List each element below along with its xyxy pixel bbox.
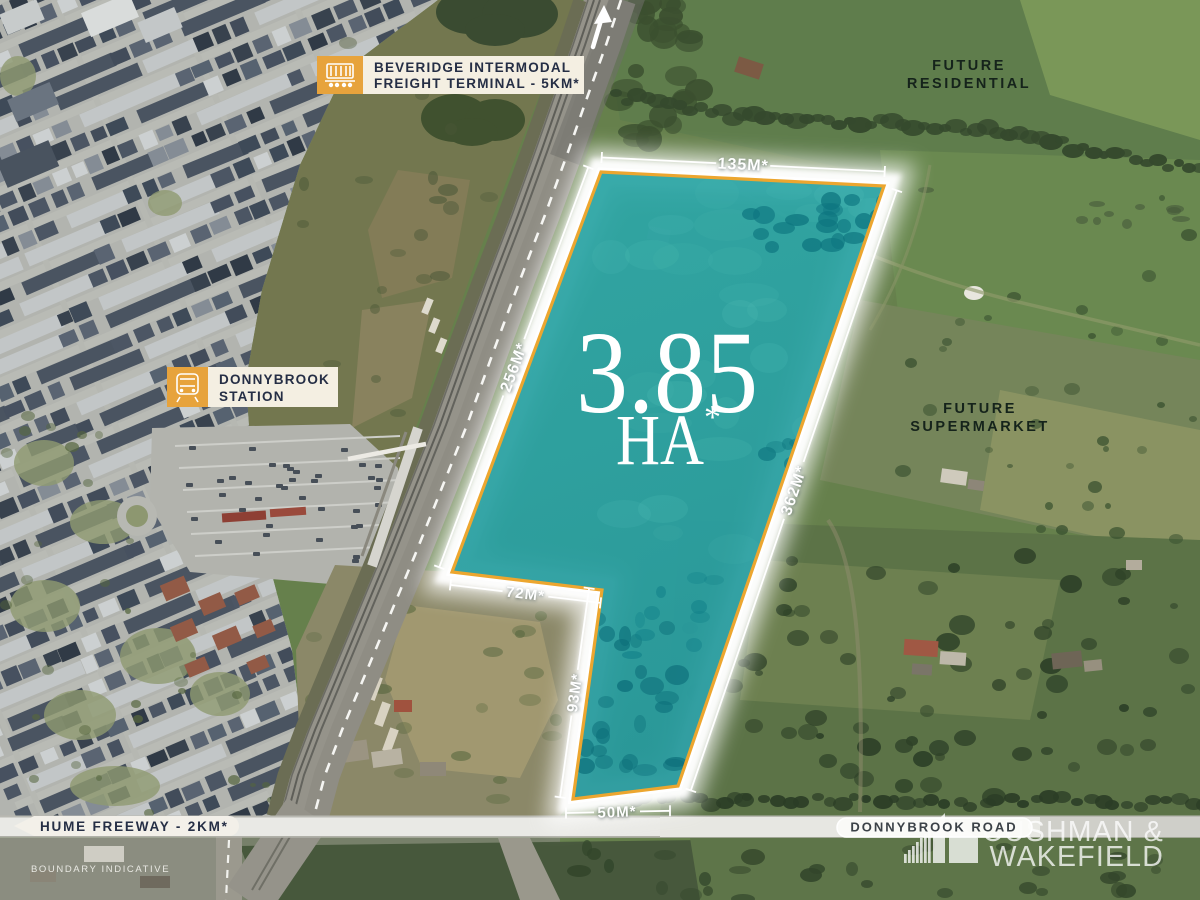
svg-text:RESIDENTIAL: RESIDENTIAL — [907, 76, 1031, 92]
svg-text:HA: HA — [616, 400, 704, 480]
svg-text:STATION: STATION — [219, 389, 285, 404]
svg-text:BOUNDARY INDICATIVE: BOUNDARY INDICATIVE — [31, 864, 170, 875]
svg-text:135M*: 135M* — [717, 155, 769, 174]
svg-text:FUTURE: FUTURE — [943, 401, 1017, 417]
svg-text:DONNYBROOK: DONNYBROOK — [219, 372, 330, 387]
svg-text:SUPERMARKET: SUPERMARKET — [910, 419, 1049, 435]
svg-text:HUME FREEWAY - 2KM*: HUME FREEWAY - 2KM* — [40, 819, 229, 834]
svg-text:50M*: 50M* — [597, 803, 637, 821]
svg-text:DONNYBROOK ROAD: DONNYBROOK ROAD — [850, 820, 1017, 835]
svg-text:FUTURE: FUTURE — [932, 58, 1006, 74]
svg-text:BEVERIDGE INTERMODAL: BEVERIDGE INTERMODAL — [374, 60, 571, 75]
svg-text:*: * — [704, 399, 721, 436]
svg-text:FREIGHT TERMINAL - 5KM*: FREIGHT TERMINAL - 5KM* — [374, 76, 580, 91]
svg-text:WAKEFIELD: WAKEFIELD — [990, 841, 1164, 873]
